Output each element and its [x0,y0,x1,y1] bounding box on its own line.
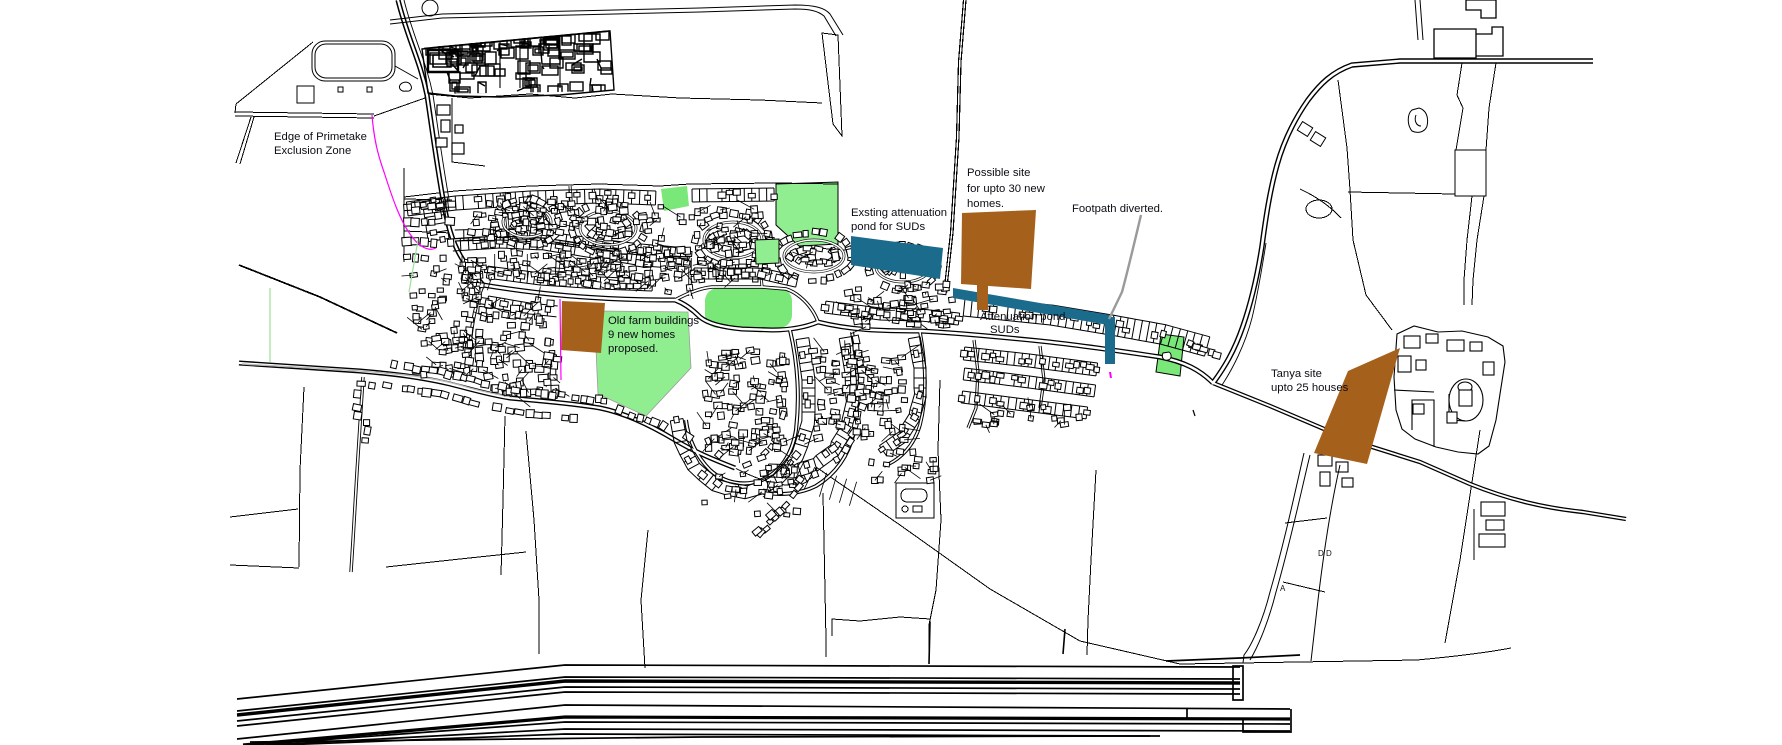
svg-text:Exclusion Zone: Exclusion Zone [274,145,351,157]
svg-text:homes.: homes. [967,198,1004,210]
svg-text:Old farm buildings: Old farm buildings [608,315,699,327]
svg-text:Possible site: Possible site [967,167,1030,179]
svg-text:SUDs: SUDs [990,324,1020,336]
svg-text:Tanya site: Tanya site [1271,368,1322,380]
svg-text:Exsting attenuation: Exsting attenuation [851,207,947,219]
svg-text:proposed.: proposed. [608,343,658,355]
svg-text:pond for SUDs: pond for SUDs [851,221,925,233]
svg-text:Attenuation pond: Attenuation pond [980,311,1065,323]
svg-text:A: A [1280,584,1286,593]
svg-text:D D: D D [1318,549,1332,558]
svg-text:Edge of Primetake: Edge of Primetake [274,131,367,143]
svg-text:for upto 30 new: for upto 30 new [967,183,1046,195]
svg-text:9 new homes: 9 new homes [608,329,676,341]
svg-text:Footpath diverted.: Footpath diverted. [1072,203,1163,215]
svg-text:upto 25 houses: upto 25 houses [1271,382,1349,394]
